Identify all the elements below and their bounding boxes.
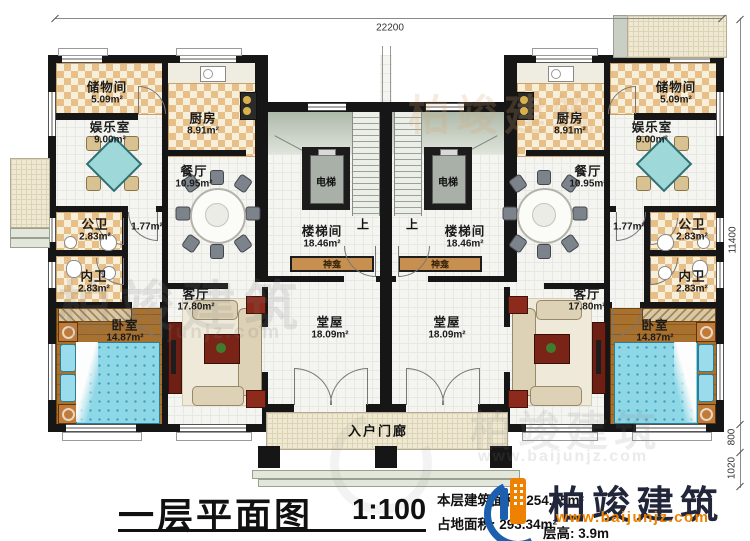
room-area: 14.87m²: [636, 332, 673, 343]
label-main-hall-left: 堂屋 18.09m²: [311, 315, 348, 340]
pillow: [60, 344, 76, 372]
wall-shrine-right-a: [392, 276, 396, 282]
side-porch: [10, 158, 50, 228]
label-hallway-right: 1.77m²: [613, 221, 645, 232]
room-area: 9.00m²: [632, 134, 673, 145]
room-area: 2.83m²: [79, 231, 111, 242]
room-name: 餐厅: [175, 164, 212, 178]
label-kitchen-right: 厨房 8.91m²: [554, 111, 586, 136]
chair: [210, 244, 224, 259]
elevator-door-left: [318, 149, 336, 156]
chair: [573, 207, 588, 221]
room-area: 18.46m²: [445, 238, 486, 249]
room-name: 内卫: [676, 269, 708, 283]
room-name: 客厅: [568, 287, 605, 301]
sill: [532, 48, 598, 56]
toilet: [657, 234, 674, 251]
nightstand-lamp: [700, 326, 713, 339]
lightwell-line: [382, 46, 383, 104]
label-main-hall-right: 堂屋 18.09m²: [428, 315, 465, 340]
lightwell-right: [392, 48, 504, 104]
label-private-bath-left: 内卫 2.83m²: [78, 269, 110, 294]
wall-party: [380, 102, 392, 412]
room-area: 10.95m²: [569, 178, 606, 189]
pillow: [698, 374, 714, 402]
room-area: 1.77m²: [613, 221, 645, 232]
window-bedroom-side-right: [716, 344, 724, 400]
label-storage-left: 储物间 5.09m²: [87, 80, 128, 105]
window-pubbath-right: [716, 218, 724, 242]
room-name: 卧室: [636, 318, 673, 332]
side-porch-step: [10, 228, 50, 238]
window-bedroom-bottom-right: [636, 424, 706, 432]
window-kitchen-left: [180, 55, 236, 63]
burner: [243, 96, 251, 104]
stair-treads-left: [352, 112, 380, 216]
burner: [520, 107, 528, 115]
nightstand-lamp: [700, 408, 713, 421]
dining-table-right-center: [532, 203, 556, 227]
label-shrine-left: 神龛: [323, 258, 341, 271]
nightstand-lamp: [62, 408, 75, 421]
sill: [62, 432, 142, 441]
room-area: 8.91m²: [554, 125, 586, 136]
wall-ent-bottom-right-a: [644, 206, 716, 212]
sofa-right-bottom: [530, 386, 582, 406]
bed-left-sheet: [76, 342, 98, 422]
room-name: 储物间: [656, 80, 697, 94]
label-entertainment-right: 娱乐室 9.00m²: [632, 120, 673, 145]
side-table: [246, 390, 266, 408]
window-storage-left: [62, 55, 102, 63]
room-name: 楼梯间: [445, 224, 486, 238]
sink-right-bowl: [551, 69, 561, 79]
sink-left-bowl: [203, 69, 213, 79]
porch-column: [490, 446, 512, 468]
wall-kitchen-left: [168, 150, 246, 156]
wall-storage-left: [56, 113, 138, 120]
room-area: 5.09m²: [87, 94, 128, 105]
lightwell-line: [390, 46, 391, 104]
sofa-left-main: [238, 308, 262, 396]
label-up-right: 上: [406, 216, 418, 233]
room-name: 卧室: [106, 318, 143, 332]
room-name: 厨房: [187, 111, 219, 125]
label-bedroom-right: 卧室 14.87m²: [636, 318, 673, 343]
side-table: [508, 390, 528, 408]
room-area: 17.80m²: [568, 301, 605, 312]
chair: [636, 176, 651, 191]
window-living-bottom-right: [526, 424, 592, 432]
room-name: 堂屋: [428, 315, 465, 329]
room-area: 10.95m²: [175, 178, 212, 189]
room-area: 2.83m²: [78, 283, 110, 294]
label-entertainment-left: 娱乐室 9.00m²: [90, 120, 131, 145]
wash-basin: [658, 266, 672, 280]
window-bedroom-bottom-left: [66, 424, 136, 432]
wall-shrine-left-b: [376, 276, 380, 282]
wall-shrine-right-b: [428, 276, 504, 282]
label-living-left: 客厅 17.80m²: [177, 287, 214, 312]
chair: [503, 207, 518, 221]
room-name: 堂屋: [311, 315, 348, 329]
room-area: 18.09m²: [428, 329, 465, 340]
dim-1020-label: 1020: [727, 457, 738, 479]
wall-bath-mid-right: [650, 250, 716, 256]
side-porch-step: [10, 238, 50, 248]
label-stairwell-right: 楼梯间 18.46m²: [445, 224, 486, 249]
dim-800-label: 800: [727, 429, 738, 446]
brand-logo-building-blue-icon: [500, 488, 508, 520]
chair: [176, 207, 191, 221]
wall-bath-mid-left: [56, 250, 122, 256]
burner: [243, 107, 251, 115]
side-table: [508, 296, 528, 314]
sill: [176, 432, 252, 441]
brand-logo-building-orange-icon: [510, 478, 526, 524]
room-area: 9.00m²: [90, 134, 131, 145]
porch-column: [258, 446, 280, 468]
label-entry-porch: 入户门廊: [348, 421, 408, 440]
dim-height-label: 11400: [728, 226, 739, 253]
label-bedroom-left: 卧室 14.87m²: [106, 318, 143, 343]
dim-width-label: 22200: [376, 23, 404, 34]
label-elevator-left: 电梯: [316, 174, 336, 189]
burner: [520, 96, 528, 104]
room-area: 17.80m²: [177, 301, 214, 312]
floor-plan-page: 22200 11400 800 1020 柏竣建筑 www.baijunjz.c…: [0, 0, 750, 541]
chair: [86, 176, 101, 191]
label-private-bath-right: 内卫 2.83m²: [676, 269, 708, 294]
sofa-right-main: [512, 308, 536, 396]
room-area: 18.46m²: [302, 238, 343, 249]
room-area: 2.83m²: [676, 231, 708, 242]
window-privbath-right: [716, 262, 724, 288]
room-area: 2.83m²: [676, 283, 708, 294]
sill: [632, 432, 712, 441]
label-elevator-right: 电梯: [438, 174, 458, 189]
wall-storage-right: [634, 113, 716, 120]
room-area: 18.09m²: [311, 329, 348, 340]
pillow: [698, 344, 714, 372]
sill: [58, 48, 108, 56]
sill: [522, 432, 598, 441]
label-storage-right: 储物间 5.09m²: [656, 80, 697, 105]
side-table: [246, 296, 266, 314]
wall-stairbay-west-left: [255, 55, 268, 282]
window-privbath-left: [48, 262, 56, 288]
terrace: [627, 15, 727, 58]
wall-shrine-left-a: [268, 276, 344, 282]
nightstand-lamp: [62, 326, 75, 339]
sill: [176, 48, 242, 56]
dim-line-right: [740, 18, 741, 488]
label-shrine-right: 神龛: [431, 258, 449, 271]
room-name: 公卫: [79, 217, 111, 231]
window-stair-left: [308, 103, 346, 111]
chair: [246, 207, 261, 221]
plant: [546, 343, 556, 353]
chair: [537, 170, 551, 185]
lightwell-left: [262, 48, 380, 104]
window-bedroom-side-left: [48, 344, 56, 400]
label-public-bath-right: 公卫 2.83m²: [676, 217, 708, 242]
room-area: 1.77m²: [131, 221, 163, 232]
label-hallway-left: 1.77m²: [131, 221, 163, 232]
brand-logo-windows-icon: [514, 484, 517, 487]
window-ent-right: [716, 92, 724, 136]
room-name: 娱乐室: [632, 120, 673, 134]
wall-kitchen-right: [526, 150, 604, 156]
window-stair-right: [426, 103, 464, 111]
pillow: [60, 374, 76, 402]
label-kitchen-left: 厨房 8.91m²: [187, 111, 219, 136]
room-name: 餐厅: [569, 164, 606, 178]
tv-right: [596, 340, 601, 374]
room-name: 厨房: [554, 111, 586, 125]
room-name: 客厅: [177, 287, 214, 301]
room-name: 公卫: [676, 217, 708, 231]
chair: [537, 244, 551, 259]
dining-table-left-center: [205, 203, 229, 227]
label-stairwell-left: 楼梯间 18.46m²: [302, 224, 343, 249]
window-living-bottom-left: [180, 424, 246, 432]
room-name: 娱乐室: [90, 120, 131, 134]
room-name: 楼梯间: [302, 224, 343, 238]
wall-mainhall-bottom-center: [366, 404, 406, 412]
label-up-left: 上: [357, 216, 369, 233]
wash-basin: [64, 236, 77, 249]
plan-scale: 1:100: [352, 494, 426, 527]
bed-right-sheet: [674, 342, 696, 422]
sofa-left-bottom: [192, 386, 244, 406]
stair-treads-right: [394, 112, 422, 216]
label-dining-left: 餐厅 10.95m²: [175, 164, 212, 189]
title-underline: [118, 529, 426, 532]
brand-website: www.baijunjz.com: [556, 509, 709, 526]
dim-line-top: [55, 18, 722, 19]
window-kitchen-right: [536, 55, 592, 63]
room-area: 8.91m²: [187, 125, 219, 136]
wall-ent-bottom-left-a: [56, 206, 128, 212]
window-ent-left: [48, 92, 56, 136]
label-public-bath-left: 公卫 2.83m²: [79, 217, 111, 242]
tv-left: [171, 340, 176, 374]
room-name: 内卫: [78, 269, 110, 283]
label-dining-right: 餐厅 10.95m²: [569, 164, 606, 189]
plant: [216, 343, 226, 353]
room-area: 14.87m²: [106, 332, 143, 343]
elevator-door-right: [440, 149, 458, 156]
label-living-right: 客厅 17.80m²: [568, 287, 605, 312]
room-name: 储物间: [87, 80, 128, 94]
room-area: 5.09m²: [656, 94, 697, 105]
